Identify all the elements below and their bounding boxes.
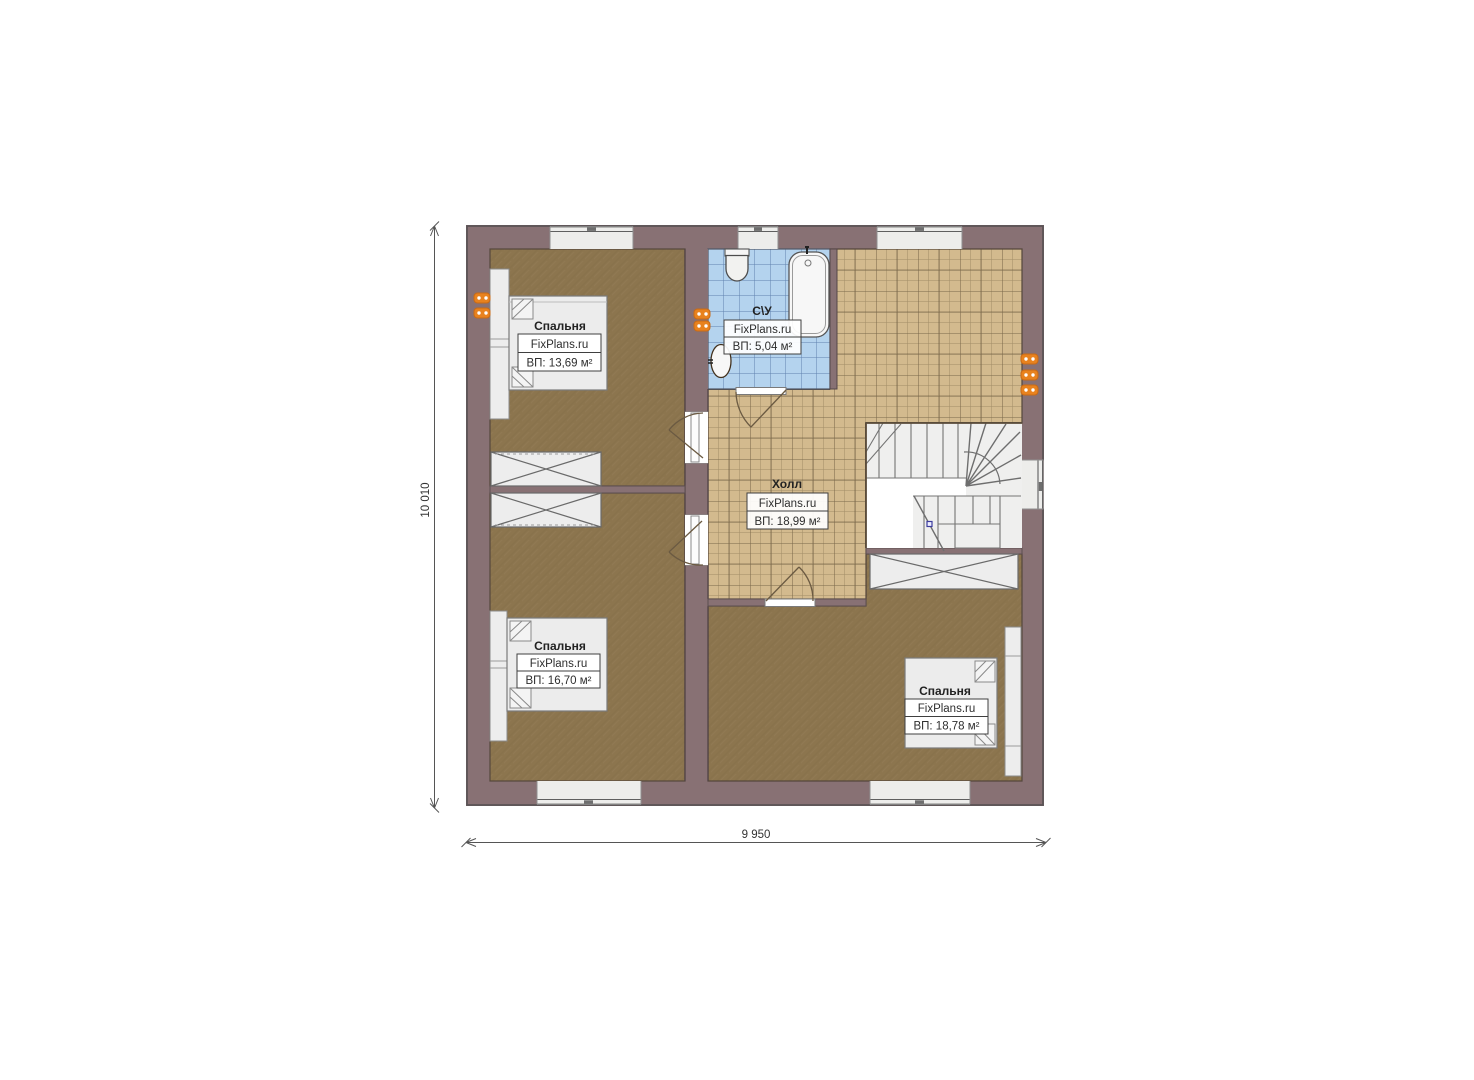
svg-text:Холл: Холл [772,477,802,491]
svg-text:ВП: 18,78 м²: ВП: 18,78 м² [913,721,979,733]
svg-text:ВП: 13,69 м²: ВП: 13,69 м² [526,358,592,370]
svg-text:Спальня: Спальня [919,684,971,698]
svg-text:FixPlans.ru: FixPlans.ru [530,658,588,670]
svg-text:FixPlans.ru: FixPlans.ru [734,324,792,336]
svg-text:ВП: 16,70 м²: ВП: 16,70 м² [525,675,591,687]
svg-text:FixPlans.ru: FixPlans.ru [759,498,817,510]
svg-text:Спальня: Спальня [534,639,586,653]
svg-text:10 010: 10 010 [420,482,432,517]
svg-text:ВП: 5,04 м²: ВП: 5,04 м² [733,341,793,353]
svg-text:С\У: С\У [752,304,772,318]
svg-text:FixPlans.ru: FixPlans.ru [918,703,976,715]
svg-text:9 950: 9 950 [742,829,771,841]
svg-text:FixPlans.ru: FixPlans.ru [531,339,589,351]
svg-text:ВП: 18,99 м²: ВП: 18,99 м² [754,516,820,528]
svg-text:Спальня: Спальня [534,319,586,333]
